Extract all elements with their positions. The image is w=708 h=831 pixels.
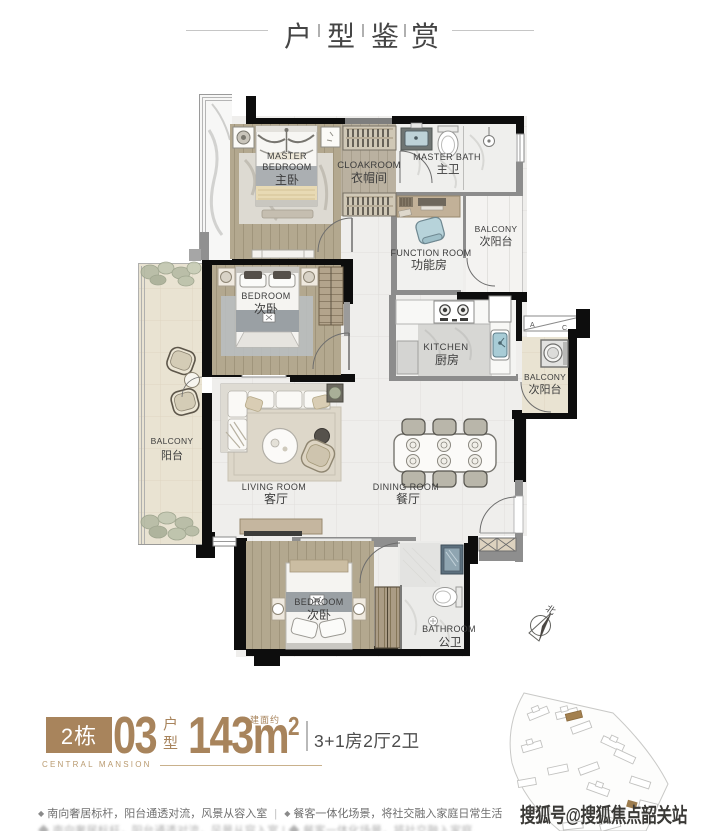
- svg-text:LIVING ROOM: LIVING ROOM: [242, 482, 306, 492]
- svg-text:次卧: 次卧: [307, 608, 331, 622]
- svg-text:BEDROOM: BEDROOM: [241, 291, 290, 301]
- svg-text:CLOAKROOM: CLOAKROOM: [337, 160, 401, 171]
- svg-text:KITCHEN: KITCHEN: [423, 342, 468, 353]
- svg-text:客厅: 客厅: [264, 491, 288, 506]
- svg-text:功能房: 功能房: [411, 257, 447, 272]
- svg-text:BALCONY: BALCONY: [524, 372, 566, 382]
- svg-text:FUNCTION ROOM: FUNCTION ROOM: [391, 248, 472, 258]
- svg-text:A: A: [530, 322, 535, 329]
- svg-text:北: 北: [543, 603, 558, 618]
- svg-text:餐厅: 餐厅: [396, 491, 420, 506]
- svg-text:公卫: 公卫: [439, 636, 462, 649]
- svg-text:BALCONY: BALCONY: [475, 224, 518, 234]
- svg-text:衣帽间: 衣帽间: [351, 170, 387, 185]
- svg-text:主卫: 主卫: [437, 163, 460, 176]
- svg-text:C: C: [562, 325, 567, 332]
- svg-text:BALCONY: BALCONY: [151, 436, 194, 446]
- svg-text:次阳台: 次阳台: [529, 382, 562, 396]
- svg-text:次阳台: 次阳台: [480, 234, 513, 248]
- svg-text:次卧: 次卧: [254, 302, 278, 316]
- svg-text:主卧: 主卧: [275, 173, 299, 187]
- svg-text:BATHROOM: BATHROOM: [422, 624, 476, 634]
- svg-text:DINING ROOM: DINING ROOM: [373, 482, 439, 492]
- svg-text:BEDROOM: BEDROOM: [294, 597, 343, 607]
- svg-text:MASTER: MASTER: [267, 151, 307, 161]
- svg-text:厨房: 厨房: [435, 352, 459, 367]
- svg-text:MASTER BATH: MASTER BATH: [413, 152, 481, 162]
- svg-text:BEDROOM: BEDROOM: [262, 162, 311, 172]
- svg-text:阳台: 阳台: [161, 448, 183, 462]
